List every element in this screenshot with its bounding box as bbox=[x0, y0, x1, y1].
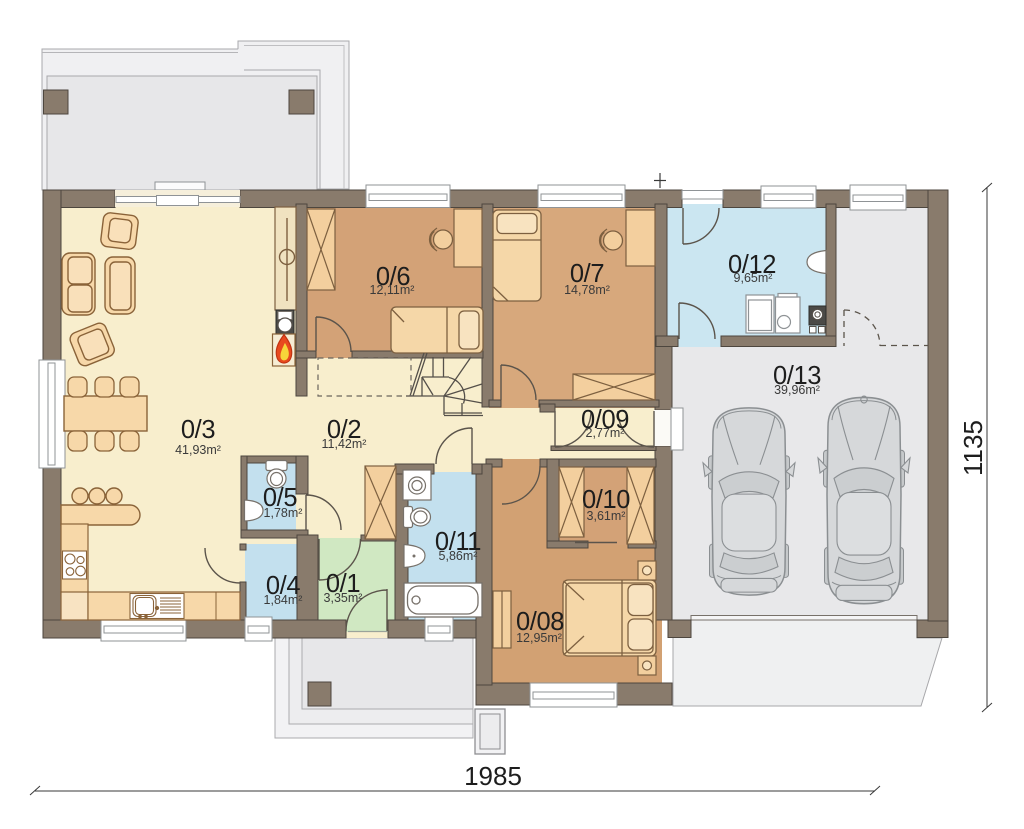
svg-text:39,96m²: 39,96m² bbox=[774, 383, 820, 397]
svg-text:5,86m²: 5,86m² bbox=[439, 549, 478, 563]
svg-text:1135: 1135 bbox=[958, 420, 988, 476]
svg-text:12,11m²: 12,11m² bbox=[370, 283, 415, 297]
svg-text:3,61m²: 3,61m² bbox=[587, 509, 626, 523]
svg-text:11,42m²: 11,42m² bbox=[322, 437, 367, 451]
svg-text:9,65m²: 9,65m² bbox=[734, 271, 773, 285]
svg-text:12,95m²: 12,95m² bbox=[516, 631, 562, 645]
svg-text:2,77m²: 2,77m² bbox=[586, 426, 625, 440]
svg-text:3,35m²: 3,35m² bbox=[324, 591, 363, 605]
svg-text:1,84m²: 1,84m² bbox=[264, 593, 303, 607]
svg-text:1,78m²: 1,78m² bbox=[264, 506, 303, 520]
svg-text:41,93m²: 41,93m² bbox=[175, 443, 221, 457]
svg-text:14,78m²: 14,78m² bbox=[564, 283, 610, 297]
svg-text:1985: 1985 bbox=[464, 761, 522, 791]
svg-text:0/3: 0/3 bbox=[181, 416, 215, 444]
